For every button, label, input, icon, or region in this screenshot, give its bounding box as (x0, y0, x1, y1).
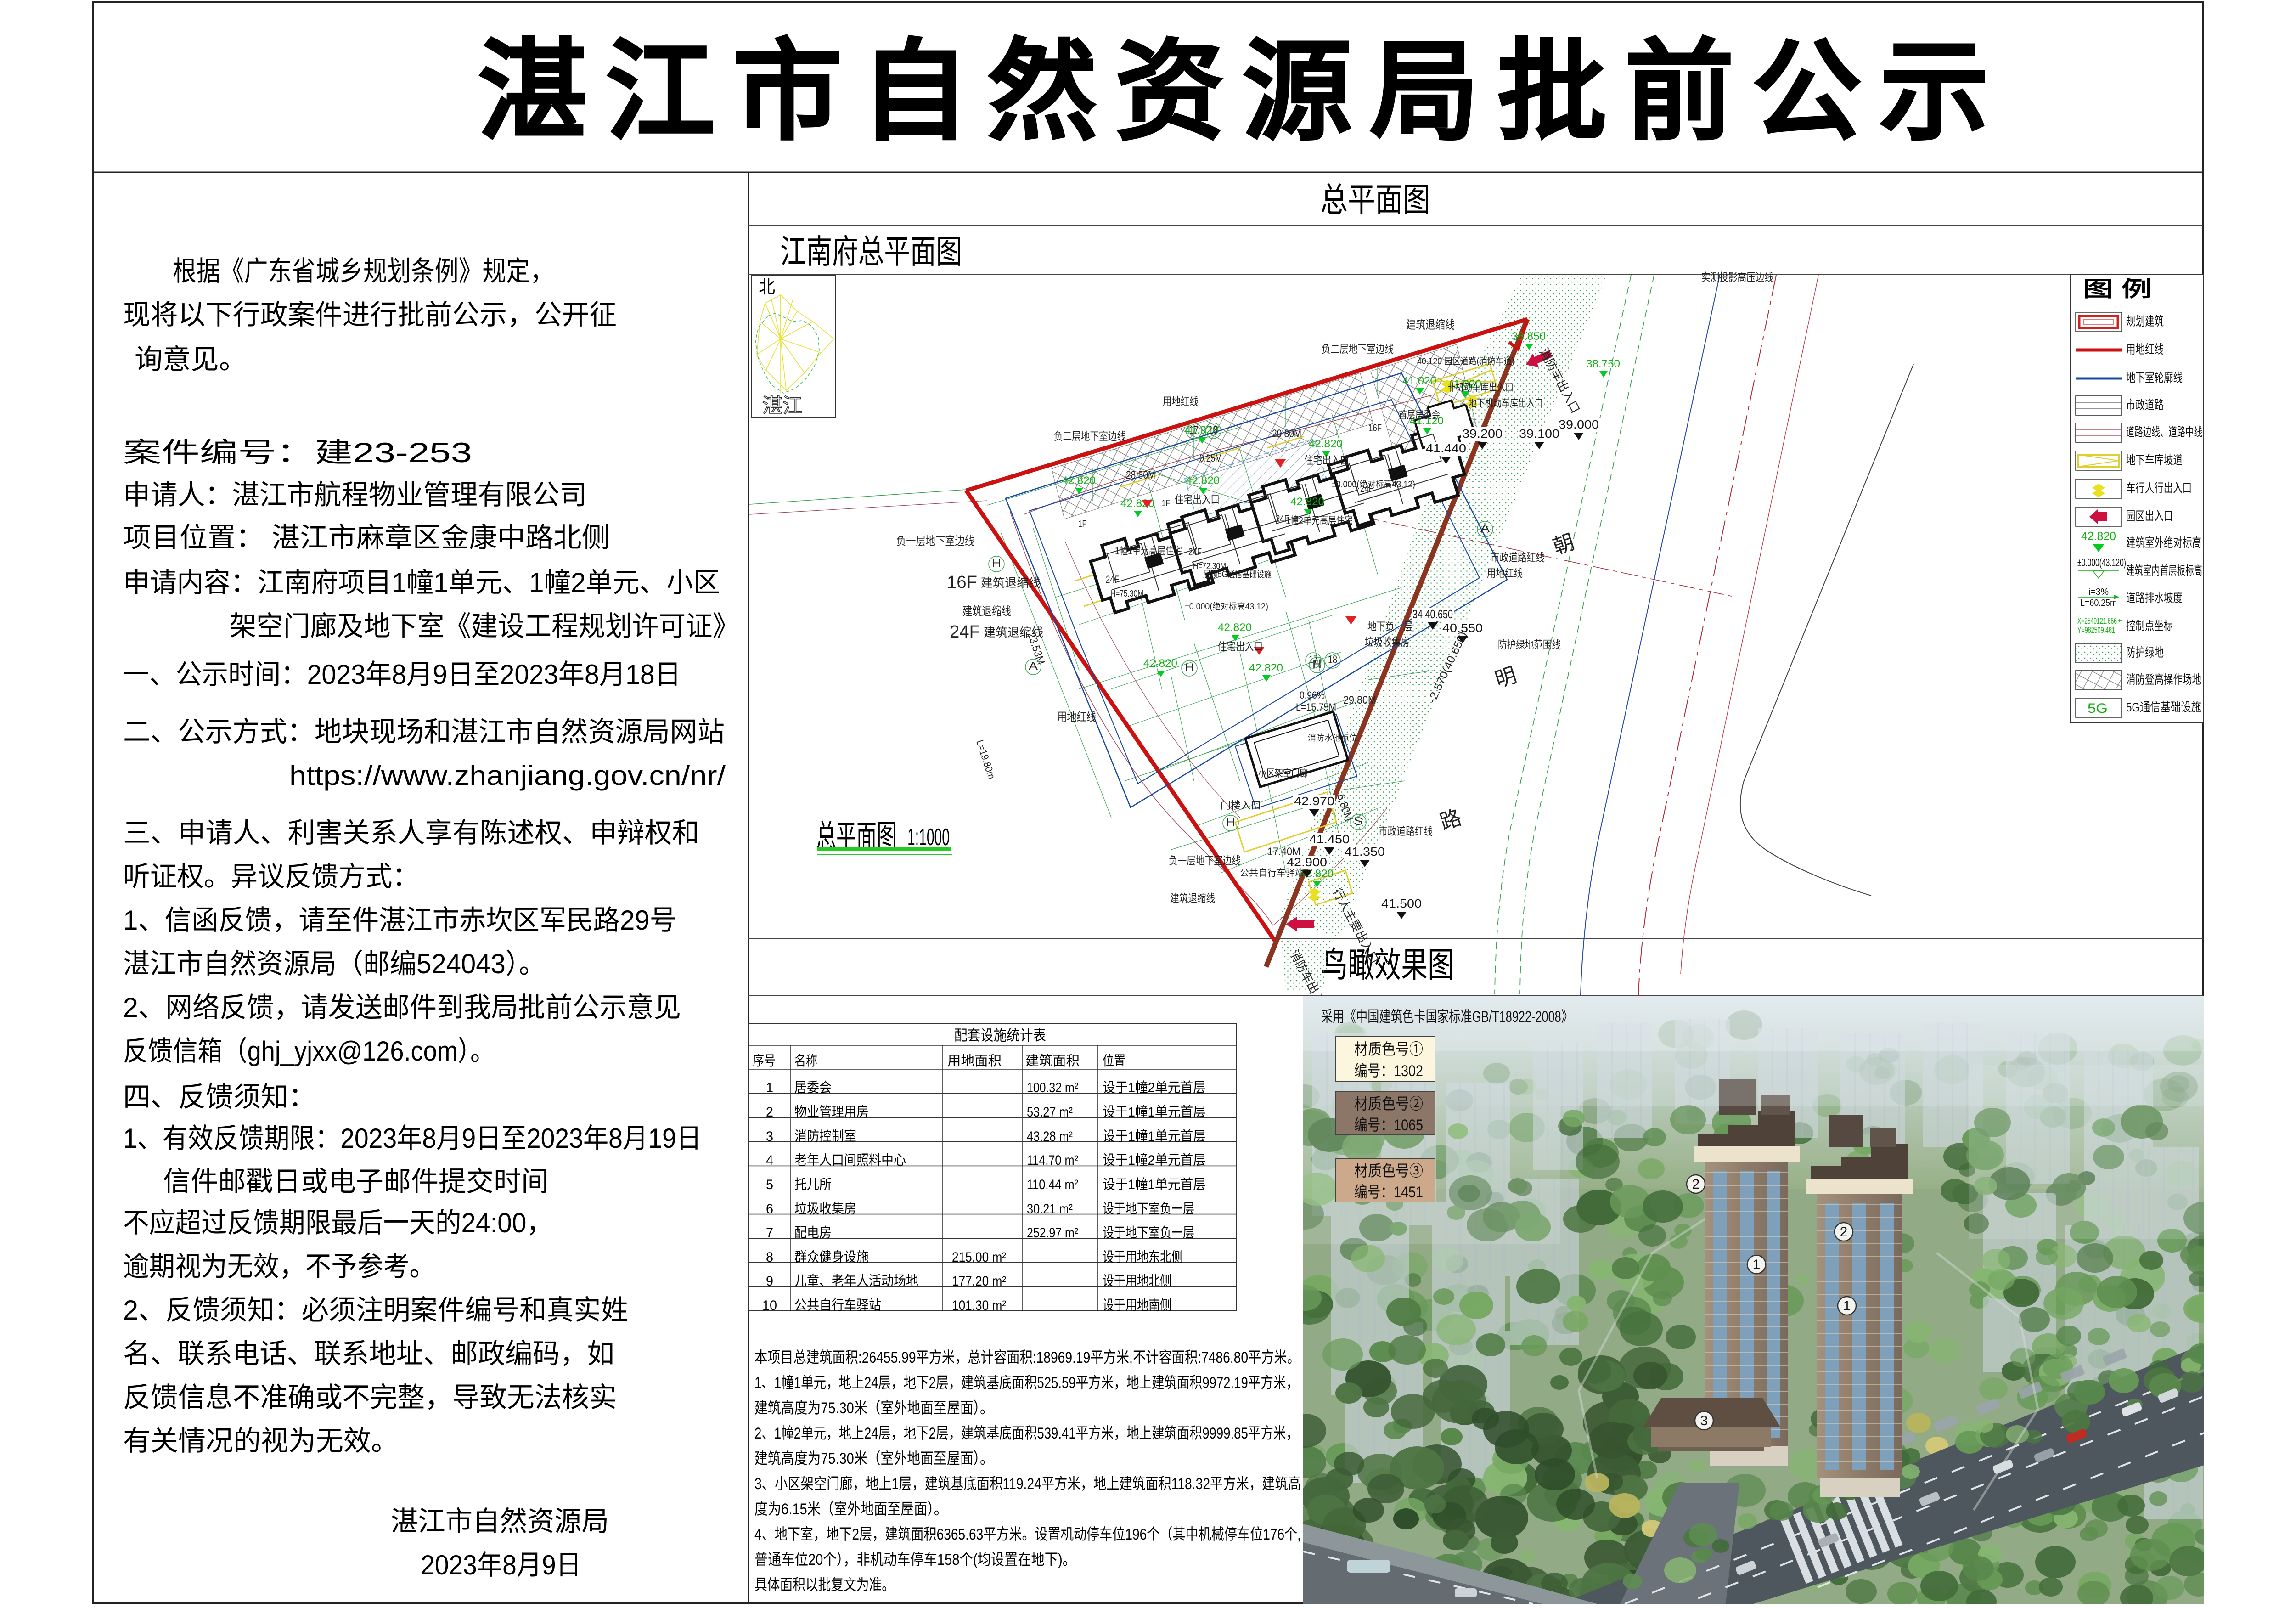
svg-text:41.440: 41.440 (1426, 441, 1466, 455)
svg-text:110.44 m²: 110.44 m² (1027, 1177, 1078, 1192)
svg-text:101.30 m²: 101.30 m² (952, 1298, 1006, 1313)
svg-text:序号: 序号 (753, 1054, 776, 1069)
svg-text:2、反馈须知：必须注明案件编号和真实姓: 2、反馈须知：必须注明案件编号和真实姓 (123, 1295, 628, 1326)
svg-text:1: 1 (1843, 1298, 1851, 1314)
svg-text:1幢2单元高层住宅: 1幢2单元高层住宅 (1286, 515, 1353, 526)
svg-text:住宅出入口: 住宅出入口 (1175, 494, 1220, 506)
svg-text:现将以下行政案件进行批前公示，公开征: 现将以下行政案件进行批前公示，公开征 (123, 299, 617, 330)
svg-text:材质色号②: 材质色号② (1354, 1095, 1423, 1113)
svg-text:群众健身设施: 群众健身设施 (794, 1250, 869, 1265)
svg-text:四、反馈须知：: 四、反馈须知： (123, 1082, 316, 1112)
svg-text:215.00 m²: 215.00 m² (952, 1250, 1006, 1265)
svg-text:消防登高操作场地: 消防登高操作场地 (2126, 673, 2201, 687)
svg-text:39.100: 39.100 (1519, 427, 1559, 440)
svg-text:24F: 24F (1106, 574, 1119, 585)
svg-text:配套设施统计表: 配套设施统计表 (954, 1027, 1046, 1044)
svg-text:设于1幢1单元首层: 设于1幢1单元首层 (1103, 1177, 1206, 1192)
svg-text:消防水池点位: 消防水池点位 (1308, 733, 1357, 743)
svg-text:鸟瞰效果图: 鸟瞰效果图 (1321, 946, 1454, 985)
svg-text:公共自行车驿站: 公共自行车驿站 (794, 1298, 881, 1313)
svg-text:名、联系电话、联系地址、邮政编码，如: 名、联系电话、联系地址、邮政编码，如 (123, 1338, 614, 1369)
svg-text:42.820: 42.820 (1309, 438, 1343, 450)
svg-text:42.820: 42.820 (2081, 529, 2116, 543)
svg-text:建筑面积: 建筑面积 (1025, 1054, 1080, 1069)
svg-text:16F: 16F (947, 573, 977, 592)
svg-text:5: 5 (766, 1177, 773, 1192)
svg-text:申请人：湛江市航程物业管理有限公司: 申请人：湛江市航程物业管理有限公司 (123, 480, 587, 510)
svg-text:普通车位20个），非机动车停车158个(均设置在地下)。: 普通车位20个），非机动车停车158个(均设置在地下)。 (754, 1551, 1076, 1569)
svg-text:0.96%: 0.96% (1300, 689, 1325, 701)
svg-text:控制点坐标: 控制点坐标 (2126, 619, 2173, 633)
svg-text:建筑退缩线: 建筑退缩线 (981, 576, 1041, 590)
svg-text:5G通信基础设施: 5G通信基础设施 (2126, 700, 2201, 714)
svg-text:42.820: 42.820 (1186, 474, 1220, 487)
svg-text:湛江: 湛江 (762, 395, 803, 417)
svg-text:消防控制室: 消防控制室 (794, 1129, 856, 1144)
svg-text:6: 6 (766, 1202, 773, 1217)
svg-text:公共自行车驿站: 公共自行车驿站 (1240, 868, 1304, 878)
svg-text:1: 1 (766, 1080, 773, 1095)
svg-text:听证权。异议反馈方式：: 听证权。异议反馈方式： (123, 861, 419, 892)
svg-text:一、公示时间：2023年8月9日至2023年8月18日: 一、公示时间：2023年8月9日至2023年8月18日 (123, 659, 681, 690)
svg-text:7: 7 (766, 1225, 773, 1241)
svg-text:负二层地下室边线: 负二层地下室边线 (1322, 343, 1394, 355)
svg-text:用地红线: 用地红线 (1163, 395, 1199, 408)
svg-text:用地红线: 用地红线 (1487, 567, 1523, 580)
svg-text:39.000: 39.000 (1559, 418, 1599, 431)
svg-text:18: 18 (1209, 424, 1218, 436)
svg-text:100.32 m²: 100.32 m² (1027, 1080, 1078, 1095)
svg-text:42.820: 42.820 (1249, 662, 1283, 674)
svg-text:防护绿地: 防护绿地 (2126, 646, 2164, 660)
svg-text:小区架空门廊: 小区架空门廊 (1258, 767, 1308, 779)
svg-text:1:1000: 1:1000 (907, 824, 950, 851)
svg-text:3: 3 (1700, 1413, 1708, 1428)
svg-text:首层居委会: 首层居委会 (1399, 409, 1440, 421)
svg-text:10: 10 (762, 1298, 777, 1313)
svg-text:42.820: 42.820 (1143, 657, 1177, 670)
svg-text:Y=982509.481: Y=982509.481 (2077, 626, 2115, 635)
svg-text:度为6.15米（室外地面至屋面）。: 度为6.15米（室外地面至屋面）。 (754, 1501, 947, 1518)
svg-text:30.21 m²: 30.21 m² (1027, 1202, 1073, 1217)
svg-text:非机动车库出入口: 非机动车库出入口 (1447, 382, 1514, 393)
svg-text:41.020: 41.020 (1402, 375, 1436, 387)
svg-text:17: 17 (1309, 654, 1318, 666)
svg-text:图 例: 图 例 (2083, 277, 2152, 301)
svg-text:建筑退缩线: 建筑退缩线 (984, 626, 1043, 639)
svg-text:设于1幢1单元首层: 设于1幢1单元首层 (1103, 1105, 1206, 1120)
svg-text:建筑退缩线: 建筑退缩线 (1406, 318, 1455, 332)
svg-text:采用《中国建筑色卡国家标准GB/T18922-2008》: 采用《中国建筑色卡国家标准GB/T18922-2008》 (1321, 1008, 1573, 1026)
svg-text:1: 1 (1753, 1257, 1761, 1272)
svg-text:4、地下室，地下2层，建筑面积6365.63平方米。设置机动: 4、地下室，地下2层，建筑面积6365.63平方米。设置机动停车位196个（其中… (754, 1526, 1301, 1543)
svg-text:建筑室外绝对标高: 建筑室外绝对标高 (2126, 536, 2201, 550)
svg-text:用地红线: 用地红线 (1057, 710, 1096, 724)
svg-text:规划建筑: 规划建筑 (2126, 315, 2164, 328)
svg-text:三、申请人、利害关系人享有陈述权、申辩权和: 三、申请人、利害关系人享有陈述权、申辩权和 (123, 818, 699, 848)
svg-text:38.750: 38.750 (1586, 358, 1620, 370)
svg-text:道路边线、道路中线: 道路边线、道路中线 (2126, 425, 2202, 439)
svg-text:±0.000(绝对标高43.12): ±0.000(绝对标高43.12) (1332, 479, 1415, 490)
svg-text:i=3%: i=3% (2088, 587, 2109, 597)
svg-text:地下室轮廓线: 地下室轮廓线 (2126, 371, 2183, 385)
svg-text:负一层地下室边线: 负一层地下室边线 (1169, 855, 1241, 867)
svg-text:38.850: 38.850 (1512, 330, 1546, 343)
svg-text:H: H (1226, 816, 1235, 829)
svg-text:询意见。: 询意见。 (135, 344, 247, 375)
svg-text:托儿所: 托儿所 (794, 1177, 832, 1192)
svg-text:2023年8月9日: 2023年8月9日 (421, 1550, 581, 1580)
svg-text:设于用地南侧: 设于用地南侧 (1103, 1298, 1171, 1313)
svg-text:住宅出入口: 住宅出入口 (1218, 641, 1263, 653)
svg-text:用地面积: 用地面积 (947, 1054, 1002, 1069)
svg-text:41.350: 41.350 (1345, 845, 1385, 858)
svg-text:住宅出入口: 住宅出入口 (1304, 454, 1349, 467)
svg-text:34 40.650: 34 40.650 (1412, 607, 1453, 621)
svg-text:用地红线: 用地红线 (2126, 343, 2164, 356)
svg-text:A: A (1029, 660, 1038, 672)
svg-text:北: 北 (759, 277, 775, 297)
svg-text:1、信函反馈，请至件湛江市赤坎区军民路29号: 1、信函反馈，请至件湛江市赤坎区军民路29号 (123, 905, 676, 936)
svg-text:1、有效反馈期限：2023年8月9日至2023年8月19日: 1、有效反馈期限：2023年8月9日至2023年8月19日 (123, 1123, 702, 1154)
svg-text:逾期视为无效，不予参考。: 逾期视为无效，不予参考。 (123, 1251, 435, 1282)
svg-text:二、公示方式：地块现场和湛江市自然资源局网站: 二、公示方式：地块现场和湛江市自然资源局网站 (123, 717, 725, 747)
svg-text:42.970: 42.970 (1294, 794, 1334, 808)
svg-text:29.80M: 29.80M (1272, 428, 1301, 440)
svg-text:41.450: 41.450 (1309, 832, 1350, 846)
svg-text:设于1幢2单元首层: 设于1幢2单元首层 (1103, 1080, 1206, 1095)
svg-text:建筑退缩线: 建筑退缩线 (1170, 892, 1215, 905)
svg-text:具体面积以批复文为准。: 具体面积以批复文为准。 (754, 1576, 895, 1594)
svg-text:24F: 24F (950, 622, 980, 642)
svg-text:3: 3 (766, 1129, 773, 1144)
svg-text:3、小区架空门廊，地上1层，建筑基底面积119.24平方米，: 3、小区架空门廊，地上1层，建筑基底面积119.24平方米，地上建筑面积118.… (754, 1475, 1301, 1493)
svg-text:道路排水坡度: 道路排水坡度 (2126, 591, 2183, 605)
svg-text:2: 2 (766, 1105, 773, 1120)
svg-text:177.20 m²: 177.20 m² (952, 1274, 1006, 1289)
svg-text:1、1幢1单元，地上24层，地下2层，建筑基底面积525.5: 1、1幢1单元，地上24层，地下2层，建筑基底面积525.59平方米，地上建筑面… (754, 1374, 1299, 1392)
svg-text:本项目总建筑面积:26455.99平方米，总计容面积:189: 本项目总建筑面积:26455.99平方米，总计容面积:18969.19平方米,不… (754, 1349, 1300, 1366)
svg-text:43.28 m²: 43.28 m² (1027, 1129, 1073, 1144)
svg-text:https://www.zhanjiang.gov.cn/n: https://www.zhanjiang.gov.cn/nr/ (289, 760, 726, 791)
svg-text:42.820: 42.820 (1062, 474, 1096, 487)
svg-text:建筑退缩线: 建筑退缩线 (962, 604, 1011, 618)
svg-text:±0.000(绝对标高43.12): ±0.000(绝对标高43.12) (1185, 601, 1268, 612)
svg-text:H=72.30M: H=72.30M (1193, 561, 1226, 571)
svg-text:S: S (1354, 815, 1363, 828)
svg-text:总平面图: 总平面图 (1320, 181, 1430, 219)
svg-text:湛江市自然资源局: 湛江市自然资源局 (391, 1506, 609, 1537)
svg-text:24F: 24F (1276, 513, 1289, 525)
svg-text:40.120 园区道路(消防车道): 40.120 园区道路(消防车道) (1417, 356, 1514, 367)
svg-text:53.27 m²: 53.27 m² (1027, 1105, 1073, 1120)
svg-text:29.80M: 29.80M (1343, 694, 1376, 706)
svg-text:根据《广东省城乡规划条例》规定，: 根据《广东省城乡规划条例》规定， (173, 256, 554, 287)
svg-text:编号：1302: 编号：1302 (1354, 1062, 1423, 1080)
svg-text:A: A (1480, 522, 1490, 535)
svg-text:2: 2 (1692, 1177, 1700, 1192)
svg-text:5G: 5G (2088, 701, 2108, 716)
svg-text:2: 2 (1840, 1224, 1848, 1240)
svg-text:不应超过反馈期限最后一天的24:00，: 不应超过反馈期限最后一天的24:00， (123, 1207, 552, 1238)
svg-text:市政道路: 市政道路 (2126, 398, 2164, 412)
svg-text:设于1幢2单元首层: 设于1幢2单元首层 (1103, 1153, 1206, 1168)
svg-text:16F: 16F (1368, 422, 1382, 434)
svg-text:8: 8 (766, 1250, 773, 1265)
svg-text:名称: 名称 (794, 1054, 817, 1069)
svg-text:反馈信箱（ghj_yjxx@126.com）。: 反馈信箱（ghj_yjxx@126.com）。 (123, 1036, 495, 1066)
svg-text:L=60.25m: L=60.25m (2080, 598, 2117, 608)
svg-text:1F: 1F (1078, 519, 1086, 529)
svg-text:0.25M: 0.25M (1199, 452, 1222, 464)
svg-text:材质色号①: 材质色号① (1354, 1041, 1423, 1058)
svg-text:24F: 24F (1188, 546, 1202, 558)
svg-text:H: H (992, 557, 1001, 570)
svg-text:反馈信息不准确或不完整，导致无法核实: 反馈信息不准确或不完整，导致无法核实 (123, 1382, 617, 1413)
svg-text:1幢1单元高层住宅: 1幢1单元高层住宅 (1115, 545, 1182, 557)
svg-text:41.500: 41.500 (1381, 897, 1422, 910)
svg-text:18: 18 (1328, 654, 1337, 666)
svg-text:物业管理用房: 物业管理用房 (794, 1105, 869, 1120)
svg-text:2、1幢2单元，地上24层，地下2层，建筑基底面积539.4: 2、1幢2单元，地上24层，地下2层，建筑基底面积539.41平方米，地上建筑面… (754, 1425, 1299, 1442)
svg-text:17: 17 (1189, 424, 1199, 436)
svg-text:材质色号③: 材质色号③ (1354, 1162, 1423, 1180)
svg-text:案件编号：建23-253: 案件编号：建23-253 (123, 437, 472, 468)
svg-text:有关情况的视为无效。: 有关情况的视为无效。 (123, 1426, 399, 1456)
svg-text:垃圾收集房: 垃圾收集房 (794, 1202, 856, 1217)
svg-text:项目位置： 湛江市麻章区金康中路北侧: 项目位置： 湛江市麻章区金康中路北侧 (123, 522, 610, 553)
svg-text:实测投影高压边线: 实测投影高压边线 (1701, 271, 1773, 284)
svg-text:设于1幢1单元首层: 设于1幢1单元首层 (1103, 1129, 1206, 1144)
svg-text:28.80M: 28.80M (1126, 469, 1155, 481)
svg-text:负一层地下室边线: 负一层地下室边线 (896, 534, 974, 548)
svg-text:防护绿地范围线: 防护绿地范围线 (1498, 639, 1561, 651)
svg-text:位置: 位置 (1103, 1054, 1125, 1069)
svg-text:建筑高度为75.30米（室外地面至屋面）。: 建筑高度为75.30米（室外地面至屋面）。 (754, 1450, 993, 1467)
svg-text:申请内容：江南府项目1幢1单元、1幢2单元、小区: 申请内容：江南府项目1幢1单元、1幢2单元、小区 (123, 567, 720, 598)
svg-text:114.70 m²: 114.70 m² (1027, 1153, 1078, 1168)
svg-text:设于用地北侧: 设于用地北侧 (1103, 1274, 1171, 1289)
svg-text:252.97 m²: 252.97 m² (1027, 1225, 1078, 1241)
svg-text:建筑室内首层板标高: 建筑室内首层板标高 (2126, 564, 2202, 578)
svg-text:17.40M: 17.40M (1267, 846, 1300, 858)
svg-text:L=15.75M: L=15.75M (1296, 701, 1336, 713)
svg-text:9: 9 (766, 1274, 773, 1289)
svg-text:24F: 24F (1360, 483, 1373, 494)
svg-text:地下负一层: 地下负一层 (1367, 621, 1412, 633)
svg-text:2、网络反馈，请发送邮件到我局批前公示意见: 2、网络反馈，请发送邮件到我局批前公示意见 (123, 992, 681, 1023)
svg-text:42.820: 42.820 (1218, 621, 1252, 634)
svg-text:编号：1451: 编号：1451 (1354, 1184, 1423, 1201)
svg-text:负二层地下室边线: 负二层地下室边线 (1054, 430, 1126, 443)
svg-text:设于用地东北侧: 设于用地东北侧 (1103, 1250, 1183, 1265)
svg-text:42.820: 42.820 (1290, 496, 1324, 508)
svg-text:地下车库坡道: 地下车库坡道 (2126, 453, 2183, 467)
svg-text:H=75.30M: H=75.30M (1110, 589, 1143, 599)
svg-text:市政道路红线: 市政道路红线 (1491, 552, 1545, 564)
svg-text:39.200: 39.200 (1462, 427, 1503, 440)
svg-text:4: 4 (766, 1153, 773, 1168)
svg-text:设于地下室负一层: 设于地下室负一层 (1103, 1225, 1194, 1241)
svg-text:信件邮戳日或电子邮件提交时间: 信件邮戳日或电子邮件提交时间 (163, 1166, 549, 1197)
svg-text:园区出入口: 园区出入口 (2126, 509, 2173, 523)
svg-text:门楼入口: 门楼入口 (1221, 800, 1261, 811)
svg-text:编号：1065: 编号：1065 (1354, 1117, 1423, 1134)
svg-text:地下机动车库出入口: 地下机动车库出入口 (1469, 397, 1543, 409)
svg-text:儿童、老年人活动场地: 儿童、老年人活动场地 (794, 1274, 918, 1289)
svg-text:湛江市自然资源局（邮编524043）。: 湛江市自然资源局（邮编524043）。 (123, 948, 546, 979)
svg-text:X=2549121.666: X=2549121.666 (2077, 616, 2117, 626)
svg-text:±0.000(43.120): ±0.000(43.120) (2077, 557, 2126, 569)
svg-text:垃圾收集房: 垃圾收集房 (1365, 636, 1410, 649)
svg-text:建筑高度为75.30米（室外地面至屋面）。: 建筑高度为75.30米（室外地面至屋面）。 (754, 1399, 993, 1417)
svg-text:老年人口间照料中心: 老年人口间照料中心 (794, 1153, 906, 1168)
svg-text:设于地下室负一层: 设于地下室负一层 (1103, 1202, 1194, 1217)
svg-text:市政道路红线: 市政道路红线 (1379, 825, 1433, 838)
svg-text:配电房: 配电房 (794, 1225, 832, 1241)
svg-text:江南府总平面图: 江南府总平面图 (780, 234, 962, 271)
svg-text:1F: 1F (1162, 498, 1170, 508)
svg-text:H: H (1185, 661, 1194, 674)
svg-text:居委会: 居委会 (794, 1080, 832, 1095)
svg-text:车行人行出入口: 车行人行出入口 (2126, 481, 2192, 495)
svg-text:架空门廊及地下室《建设工程规划许可证》: 架空门廊及地下室《建设工程规划许可证》 (230, 611, 739, 642)
